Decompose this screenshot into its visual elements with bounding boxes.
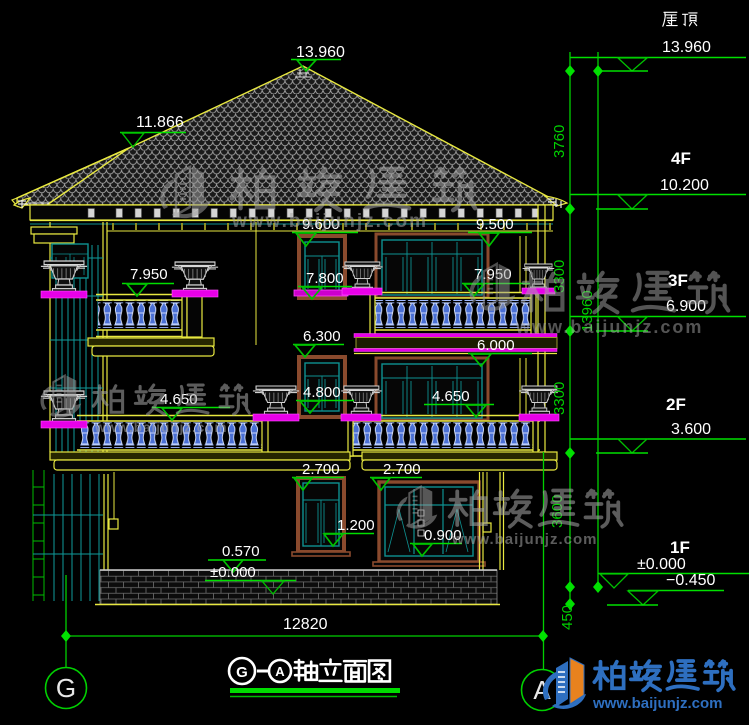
svg-text:450: 450 (559, 605, 576, 630)
svg-text:0.570: 0.570 (222, 543, 260, 560)
svg-text:www.baijunjz.com: www.baijunjz.com (231, 211, 428, 232)
svg-text:±0.000: ±0.000 (637, 556, 686, 573)
svg-text:1F: 1F (670, 538, 690, 557)
svg-text:www.baijunjz.com: www.baijunjz.com (451, 531, 597, 548)
svg-text:www.baijunjz.com: www.baijunjz.com (94, 420, 228, 435)
svg-text:6.300: 6.300 (303, 328, 341, 345)
svg-text:4.650: 4.650 (432, 388, 470, 405)
svg-text:4F: 4F (671, 149, 691, 168)
svg-text:7.950: 7.950 (130, 266, 168, 283)
svg-text:1.200: 1.200 (337, 517, 375, 534)
svg-text:7.800: 7.800 (306, 270, 344, 287)
svg-text:12820: 12820 (283, 616, 328, 633)
svg-text:13.960: 13.960 (662, 39, 711, 56)
svg-text:3.600: 3.600 (671, 421, 711, 438)
svg-text:6.000: 6.000 (477, 337, 515, 354)
svg-text:www.baijunjz.com: www.baijunjz.com (592, 695, 722, 712)
svg-text:2.700: 2.700 (383, 461, 421, 478)
svg-text:13.960: 13.960 (296, 44, 345, 61)
svg-text:A: A (275, 664, 285, 679)
svg-text:2F: 2F (666, 395, 686, 414)
svg-text:G: G (236, 664, 248, 681)
svg-text:2.700: 2.700 (302, 461, 340, 478)
svg-text:9.500: 9.500 (476, 216, 514, 233)
svg-text:4.800: 4.800 (303, 384, 341, 401)
svg-text:www.baijunjz.com: www.baijunjz.com (515, 317, 703, 337)
svg-text:G: G (56, 673, 76, 703)
svg-text:10.200: 10.200 (660, 177, 709, 194)
svg-text:−0.450: −0.450 (666, 572, 715, 589)
svg-text:±0.000: ±0.000 (210, 564, 256, 581)
svg-text:3300: 3300 (551, 382, 568, 415)
svg-text:11.866: 11.866 (136, 114, 184, 131)
svg-text:3760: 3760 (551, 125, 568, 158)
